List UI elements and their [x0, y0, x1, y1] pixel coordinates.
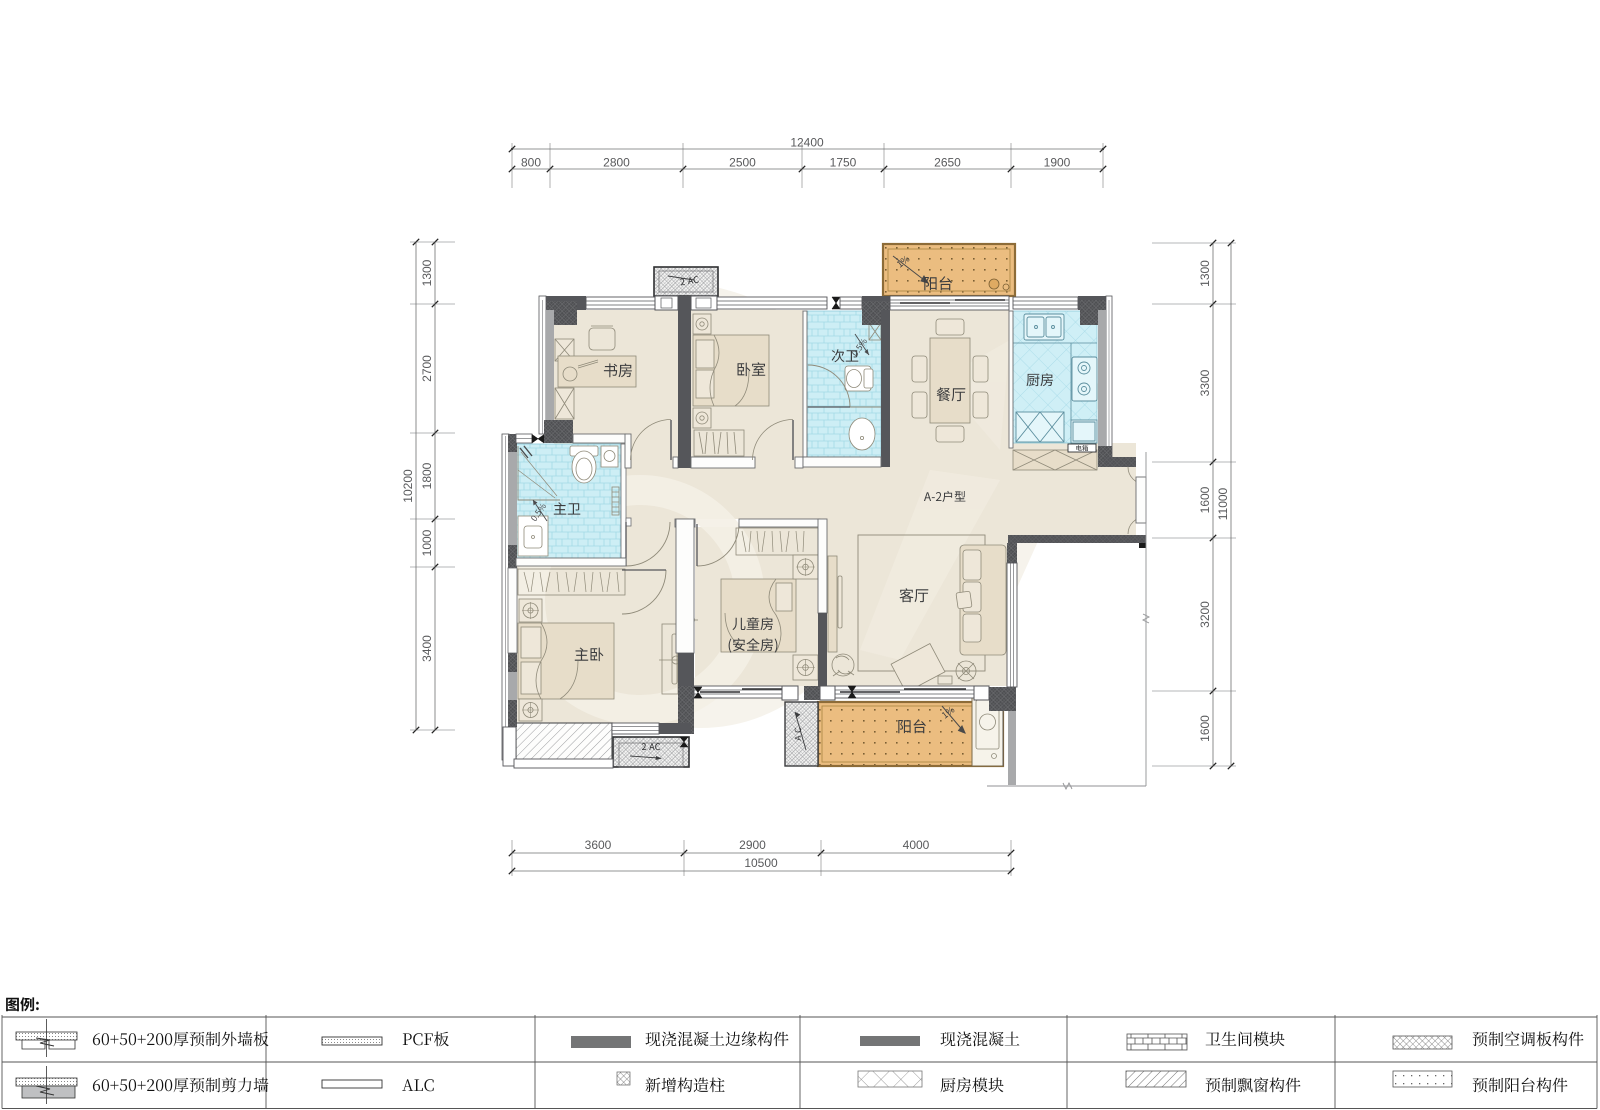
svg-text:1600: 1600 — [1198, 486, 1212, 513]
svg-text:1800: 1800 — [420, 462, 434, 489]
svg-text:1600: 1600 — [1198, 715, 1212, 742]
svg-text:3400: 3400 — [420, 635, 434, 662]
svg-text:1900: 1900 — [1044, 156, 1071, 170]
svg-text:1300: 1300 — [420, 259, 434, 286]
svg-text:2700: 2700 — [420, 355, 434, 382]
svg-text:10200: 10200 — [401, 469, 415, 503]
svg-text:3300: 3300 — [1198, 369, 1212, 396]
svg-text:1300: 1300 — [1198, 260, 1212, 287]
svg-text:3200: 3200 — [1198, 601, 1212, 628]
svg-text:3600: 3600 — [585, 838, 612, 852]
svg-text:10500: 10500 — [744, 856, 778, 870]
svg-text:12400: 12400 — [790, 136, 824, 150]
svg-text:11000: 11000 — [1216, 487, 1230, 520]
svg-text:2900: 2900 — [739, 838, 766, 852]
svg-text:2500: 2500 — [729, 156, 756, 170]
svg-text:800: 800 — [521, 156, 541, 170]
svg-text:1750: 1750 — [830, 156, 857, 170]
svg-text:2650: 2650 — [934, 156, 961, 170]
svg-text:1000: 1000 — [420, 529, 434, 556]
svg-text:2800: 2800 — [603, 156, 630, 170]
svg-text:4000: 4000 — [903, 838, 930, 852]
